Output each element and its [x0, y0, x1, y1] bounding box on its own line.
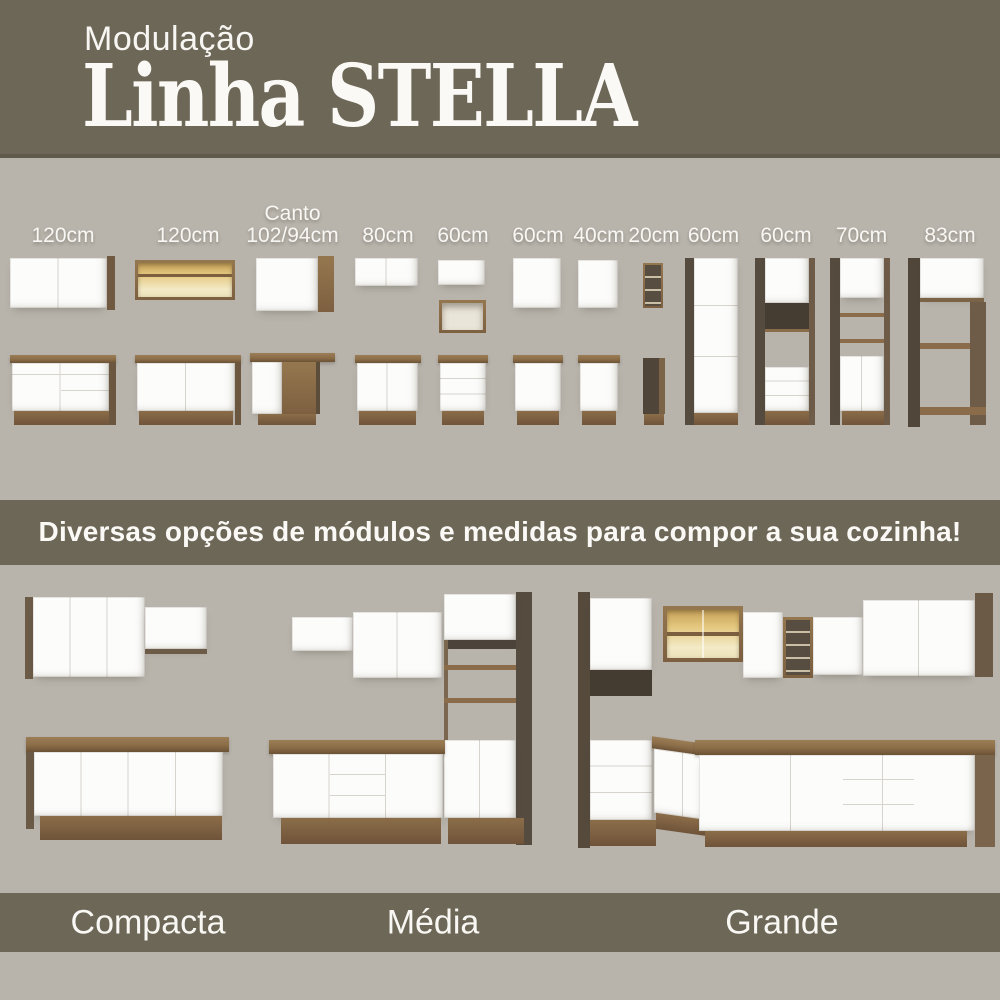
side-panel — [975, 593, 993, 677]
base-cabinet — [273, 754, 443, 818]
plinth — [705, 831, 967, 847]
kitchen-name-media: Média — [387, 903, 480, 942]
plinth — [139, 411, 233, 425]
plinth — [590, 820, 656, 846]
tall-top-door — [590, 598, 652, 670]
divider-banner: Diversas opções de módulos e medidas par… — [0, 500, 1000, 565]
wall-cabinet — [863, 600, 975, 676]
side-panel — [830, 258, 840, 425]
module-size-label: 60cm — [688, 225, 739, 247]
base-cabinet — [515, 363, 561, 411]
side-panel — [107, 256, 115, 310]
wall-cabinet — [145, 607, 207, 649]
module-size-label: 60cm — [437, 225, 488, 247]
wall-cabinet — [513, 258, 561, 308]
open-shelf-unit — [786, 620, 810, 675]
module-size-label: 70cm — [836, 225, 887, 247]
wood-edge — [145, 649, 207, 654]
countertop — [10, 355, 116, 363]
countertop — [135, 355, 241, 363]
module-column-60cm-a: 60cm — [438, 255, 488, 435]
base-cabinet — [34, 752, 223, 816]
countertop — [269, 740, 445, 754]
module-column-canto: Canto 102/94cm — [250, 255, 335, 435]
base-cabinet — [699, 755, 975, 831]
plinth — [582, 411, 616, 425]
wood-shelf — [920, 407, 986, 415]
side-panel — [659, 358, 665, 414]
side-panel — [25, 597, 33, 679]
side-panel — [884, 258, 890, 425]
tall-bottom-doors — [444, 740, 516, 818]
module-column-80cm: 80cm — [355, 255, 421, 435]
module-column-60cm-b: 60cm — [513, 255, 563, 435]
plinth — [281, 818, 441, 844]
countertop — [695, 740, 995, 755]
side-panel — [908, 258, 920, 427]
plinth — [842, 411, 884, 425]
plinth — [258, 414, 316, 425]
plinth — [765, 411, 809, 425]
plinth — [644, 414, 664, 425]
drawer-stack — [590, 740, 652, 820]
tall-bottom-doors — [840, 356, 884, 411]
side-panel — [755, 258, 765, 425]
divider-text: Diversas opções de módulos e medidas par… — [39, 516, 962, 550]
module-column-60cm-tall-a: 60cm — [685, 255, 742, 435]
plinth — [694, 413, 738, 425]
wall-cabinet — [292, 617, 353, 651]
module-size-label: 20cm — [628, 225, 679, 247]
wall-cabinet — [10, 258, 107, 308]
side-panel — [809, 258, 815, 425]
module-size-label: 40cm — [573, 225, 624, 247]
open-niche — [442, 303, 483, 330]
module-column-60cm-tall-b: 60cm — [755, 255, 817, 435]
corner-wood-door — [282, 362, 316, 414]
module-size-label: 83cm — [924, 225, 975, 247]
side-panel — [109, 363, 116, 425]
module-size-label: 120cm — [31, 225, 94, 247]
side-panel — [26, 752, 34, 829]
countertop — [250, 353, 335, 362]
module-column-83cm: 83cm — [908, 255, 992, 435]
wall-cabinet — [743, 612, 783, 678]
plinth — [448, 818, 524, 844]
countertop — [355, 355, 421, 363]
module-size-label: Canto 102/94cm — [246, 203, 338, 247]
base-cabinet — [580, 363, 618, 411]
side-panel — [235, 363, 241, 425]
wood-shelf — [765, 329, 809, 332]
module-size-label: 60cm — [760, 225, 811, 247]
plinth — [517, 411, 559, 425]
wall-cabinet — [33, 597, 145, 677]
wood-shelf — [444, 665, 516, 670]
base-cabinet — [12, 363, 109, 411]
tall-top-door — [840, 258, 884, 298]
plinth — [359, 411, 416, 425]
open-niche — [590, 670, 652, 696]
infographic-linha-stella: Modulação Linha STELLA 120cm 120cm — [0, 0, 1000, 1000]
header-banner: Modulação Linha STELLA — [0, 0, 1000, 158]
wall-cabinet — [813, 617, 863, 675]
side-panel — [975, 755, 995, 847]
wood-shelf — [840, 339, 884, 343]
side-panel — [316, 362, 320, 414]
glass-shelf — [138, 274, 232, 277]
open-shelf-unit — [645, 265, 661, 306]
countertop — [438, 355, 488, 363]
base-cabinet — [357, 363, 418, 411]
wall-cabinet — [355, 258, 418, 286]
open-niche — [444, 640, 516, 649]
module-column-40cm: 40cm — [578, 255, 620, 435]
plinth — [14, 411, 109, 425]
footer-banner: Compacta Média Grande — [0, 893, 1000, 952]
glass-door — [138, 263, 232, 297]
tall-pantry-cabinet — [694, 258, 738, 413]
base-cabinet — [137, 363, 235, 411]
glass-divider — [702, 610, 704, 658]
wood-shelf — [444, 698, 516, 703]
open-niche — [765, 303, 809, 329]
countertop — [578, 355, 620, 363]
kitchens-section — [0, 565, 1000, 893]
wall-cabinet — [578, 260, 618, 308]
module-column-120cm-b: 120cm — [135, 255, 241, 435]
plinth — [442, 411, 484, 425]
module-size-label: 120cm — [156, 225, 219, 247]
module-column-120cm-a: 120cm — [10, 255, 116, 435]
drawer-stack — [843, 755, 915, 831]
modules-section: 120cm 120cm Canto 102/94cm — [0, 158, 1000, 500]
corner-base-door — [252, 362, 282, 414]
wood-shelf — [920, 343, 970, 349]
corner-wall-cabinet — [256, 258, 318, 311]
module-size-label: 60cm — [512, 225, 563, 247]
drawer-stack — [765, 367, 809, 411]
corner-wood-panel — [318, 256, 334, 312]
tall-top-door — [765, 258, 809, 303]
wall-cabinet — [353, 612, 442, 678]
wall-cabinet — [438, 260, 485, 285]
countertop — [26, 737, 229, 752]
wood-shelf — [840, 313, 884, 317]
drawer-stack — [330, 754, 387, 818]
countertop — [513, 355, 563, 363]
drawer-base-cabinet — [440, 363, 486, 411]
kitchen-name-grande: Grande — [725, 903, 838, 942]
tall-top-cabinet — [920, 258, 984, 298]
module-column-20cm: 20cm — [643, 255, 665, 435]
side-panel — [516, 592, 532, 845]
side-panel — [685, 258, 694, 425]
tall-top-door — [444, 594, 516, 640]
wood-edge — [444, 640, 448, 745]
plinth — [40, 816, 222, 840]
module-size-label: 80cm — [362, 225, 413, 247]
kitchen-name-compacta: Compacta — [71, 903, 226, 942]
side-panel — [578, 592, 590, 848]
module-column-70cm: 70cm — [830, 255, 893, 435]
page-title: Linha STELLA — [82, 54, 636, 140]
